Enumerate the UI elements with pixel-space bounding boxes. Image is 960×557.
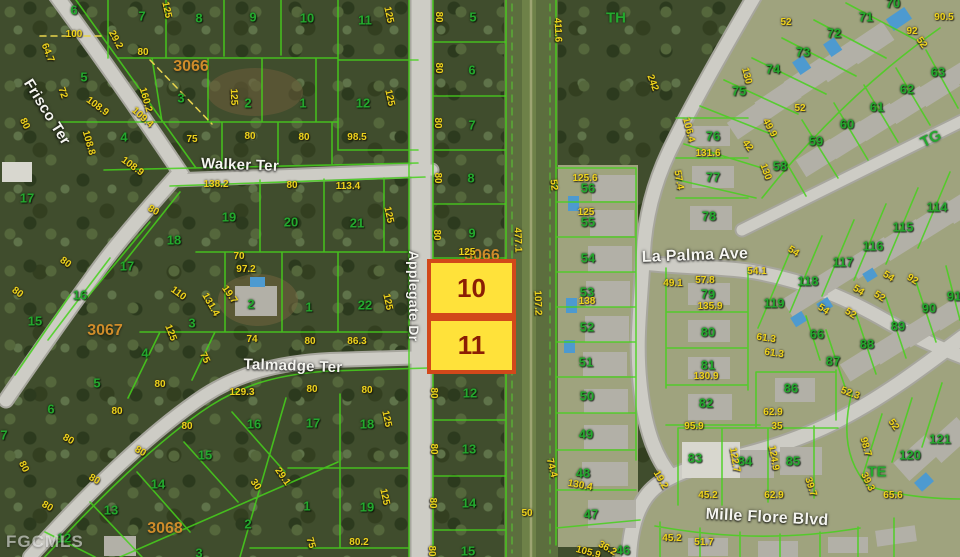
highlighted-lot-10-label: 10: [457, 273, 486, 304]
dirt-clearing: [207, 68, 303, 116]
highlighted-lot-11[interactable]: 11: [427, 317, 516, 374]
map-canvas[interactable]: 10 11 6789101153211241756789121314151920…: [0, 0, 960, 557]
highlighted-lot-10[interactable]: 10: [427, 259, 516, 317]
mls-watermark: FGCMLS: [6, 532, 84, 552]
highlighted-lot-11-label: 11: [458, 330, 486, 361]
